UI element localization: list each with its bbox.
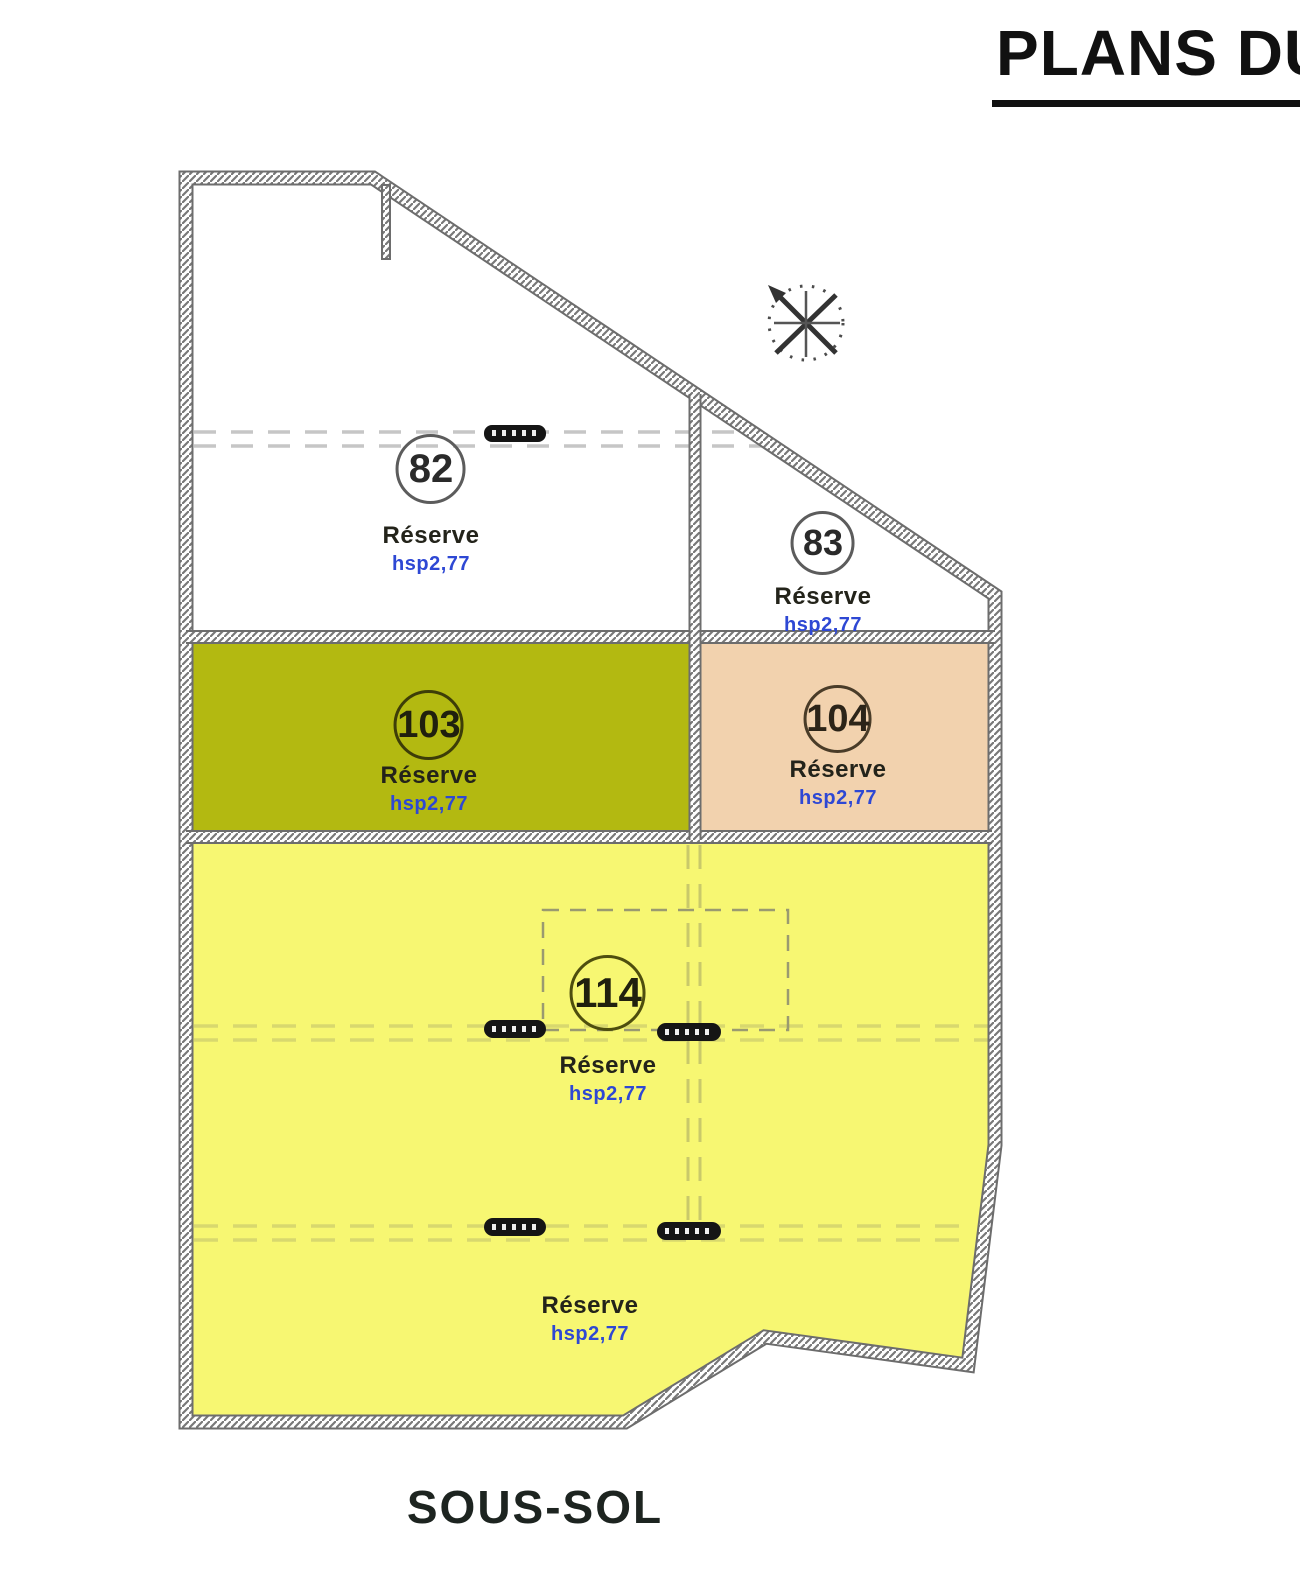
room-82-label: 82 Réserve hsp2,77 xyxy=(383,434,480,576)
beam-symbol xyxy=(657,1222,721,1240)
room-103-ceiling-height: hsp2,77 xyxy=(390,793,468,816)
basement-plan-page: PLANS DU 82 Réserve hsp2,77 83 Réserve h… xyxy=(0,0,1300,1576)
floor-caption: SOUS-SOL xyxy=(407,1480,663,1534)
room-82-name: Réserve xyxy=(383,522,480,550)
room-104-ceiling-height: hsp2,77 xyxy=(799,787,877,810)
reserve-south-name: Réserve xyxy=(542,1292,639,1320)
room-103-name: Réserve xyxy=(381,762,478,790)
beam-symbol xyxy=(484,1218,546,1236)
room-104-number-circle: 104 xyxy=(804,685,872,753)
floor-plan-drawing xyxy=(0,0,1300,1576)
dashed-axis-lines-upper xyxy=(194,432,768,446)
beam-symbol xyxy=(657,1023,721,1041)
compass-north-icon xyxy=(768,285,843,360)
room-82-ceiling-height: hsp2,77 xyxy=(392,553,470,576)
page-title: PLANS DU xyxy=(992,16,1300,107)
room-83-number-circle: 83 xyxy=(791,511,855,575)
beam-symbol xyxy=(484,425,546,442)
reserve-south-ceiling-height: hsp2,77 xyxy=(551,1323,629,1346)
room-104-label: 104 Réserve hsp2,77 xyxy=(790,685,887,810)
room-82-number-circle: 82 xyxy=(396,434,466,504)
room-114-label: 114 Réserve hsp2,77 xyxy=(560,955,657,1106)
room-104-name: Réserve xyxy=(790,756,887,784)
room-83-label: 83 Réserve hsp2,77 xyxy=(775,511,872,637)
room-103-number-circle: 103 xyxy=(394,690,464,760)
room-114-number-circle: 114 xyxy=(570,955,646,1031)
reserve-south-label: Réserve hsp2,77 xyxy=(542,1292,639,1346)
room-83-name: Réserve xyxy=(775,583,872,611)
room-114-name: Réserve xyxy=(560,1052,657,1080)
beam-symbol xyxy=(484,1020,546,1038)
room-103-label: 103 Réserve hsp2,77 xyxy=(381,690,478,816)
room-114-ceiling-height: hsp2,77 xyxy=(569,1083,647,1106)
room-83-ceiling-height: hsp2,77 xyxy=(784,614,862,637)
